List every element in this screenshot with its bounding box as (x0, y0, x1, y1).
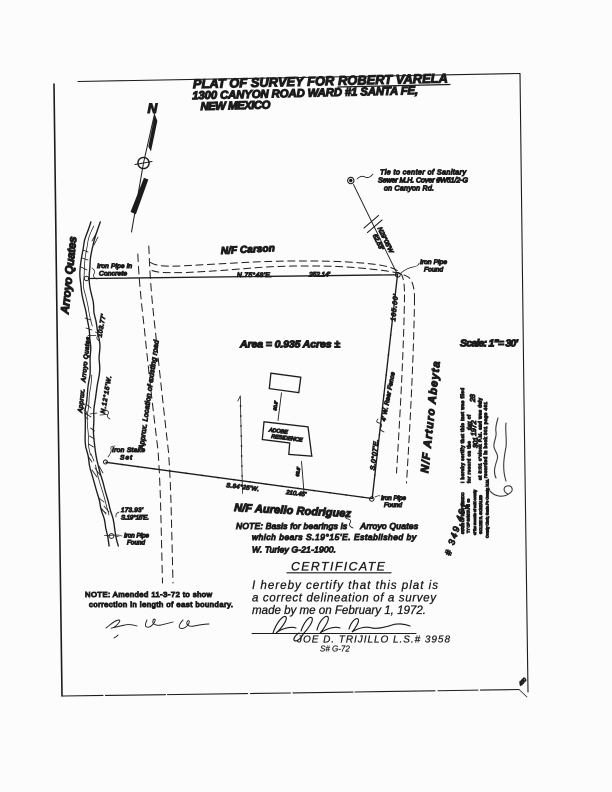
svg-text:GOLDIE R. GONZALES: GOLDIE R. GONZALES (479, 495, 483, 534)
svg-text:made by me on February 1, 1972: made by me on February 1, 1972. (252, 604, 426, 617)
svg-text:at 3:01 o'clock P.M. and was d: at 3:01 o'clock P.M. and was duly (478, 397, 483, 480)
svg-text:Iron Pipe in: Iron Pipe in (97, 263, 132, 270)
svg-text:correction in length of east b: correction in length of east boundary. (89, 600, 233, 609)
svg-text:165.00': 165.00' (390, 293, 400, 321)
svg-text:Iron Stake: Iron Stake (112, 447, 145, 454)
svg-text:Tie to center of Sanitary: Tie to center of Sanitary (380, 170, 467, 177)
svg-text:N/F Carson: N/F Carson (221, 243, 276, 257)
svg-text:on Canyon Rd.: on Canyon Rd. (384, 186, 434, 193)
svg-text:Sewer M.H. Cover #W51/2-G: Sewer M.H. Cover #W51/2-G (378, 178, 469, 185)
svg-text:W. Turley G-21-1900.: W. Turley G-21-1900. (252, 545, 336, 555)
svg-text:Found: Found (127, 540, 146, 547)
svg-text:NEW MEXICO: NEW MEXICO (200, 100, 270, 114)
svg-text:NOTE: Basis for bearings is: NOTE: Basis for bearings is Arroyo Quate… (236, 521, 419, 531)
svg-text:S# G-72: S# G-72 (320, 645, 350, 654)
svg-text:a correct delineation of a sur: a correct delineation of a survey (252, 592, 437, 605)
svg-text:103.77': 103.77' (97, 313, 108, 338)
svg-text:450: 450 (518, 677, 528, 687)
svg-text:Area = 0.935 Acres ±: Area = 0.935 Acres ± (239, 339, 340, 351)
svg-text:Concrete: Concrete (99, 271, 127, 278)
svg-text:Approx. Location of existing r: Approx. Location of existing road (138, 339, 161, 451)
svg-text:30.6': 30.6' (272, 401, 278, 411)
svg-text:of the records of said county: of the records of said county (473, 490, 477, 535)
svg-text:N/F Aurelio Rodriguez: N/F Aurelio Rodriguez (234, 502, 352, 520)
svg-text:4' W. Rear Fence: 4' W. Rear Fence (380, 371, 397, 422)
svg-text:Iron Pipe: Iron Pipe (124, 533, 150, 540)
svg-text:173.93': 173.93' (121, 507, 144, 514)
svg-text:recorded in book 301 page 461: recorded in book 301 page 461 (483, 402, 488, 478)
svg-text:N.12°15'W.: N.12°15'W. (100, 375, 113, 414)
svg-text:I hereby certify that this pla: I hereby certify that this plat is (252, 579, 438, 592)
svg-text:N.75°48'E.: N.75°48'E. (237, 271, 272, 279)
svg-text:Iron Pipe: Iron Pipe (381, 495, 407, 502)
svg-text:Arroyo Quates: Arroyo Quates (59, 236, 79, 316)
svg-text:Found: Found (424, 267, 443, 274)
svg-text:S.19°15'E.: S.19°15'E. (121, 515, 149, 522)
svg-text:Set: Set (120, 455, 133, 462)
svg-text:CERTIFICATE: CERTIFICATE (291, 560, 386, 574)
svg-text:Scale: 1"= 30': Scale: 1"= 30' (460, 338, 519, 350)
svg-text:N: N (148, 101, 158, 116)
svg-text:Iron Pipe: Iron Pipe (420, 259, 447, 266)
svg-text:28: 28 (470, 394, 477, 403)
svg-text:County Clerk, Santa Fe County,: County Clerk, Santa Fe County, N.M. (486, 479, 490, 538)
svg-text:which bears S.19°15'E. Establ: which bears S.19°15'E. Established by (252, 532, 417, 542)
svg-text:for record on the day of: for record on the day of (467, 395, 472, 483)
svg-text:I hereby certify that this Ins: I hereby certify that this Inst was file… (460, 388, 465, 483)
svg-text:252.14': 252.14' (308, 272, 331, 279)
svg-text:63.6': 63.6' (295, 467, 301, 477)
svg-text:Found: Found (384, 502, 403, 509)
svg-text:NOTE: Amended 11-3-72 to sho: NOTE: Amended 11-3-72 to show (85, 590, 213, 599)
svg-text:S.0°07'E.: S.0°07'E. (369, 439, 381, 471)
svg-text:N/F Arturo Abeyta: N/F Arturo Abeyta (419, 361, 443, 474)
